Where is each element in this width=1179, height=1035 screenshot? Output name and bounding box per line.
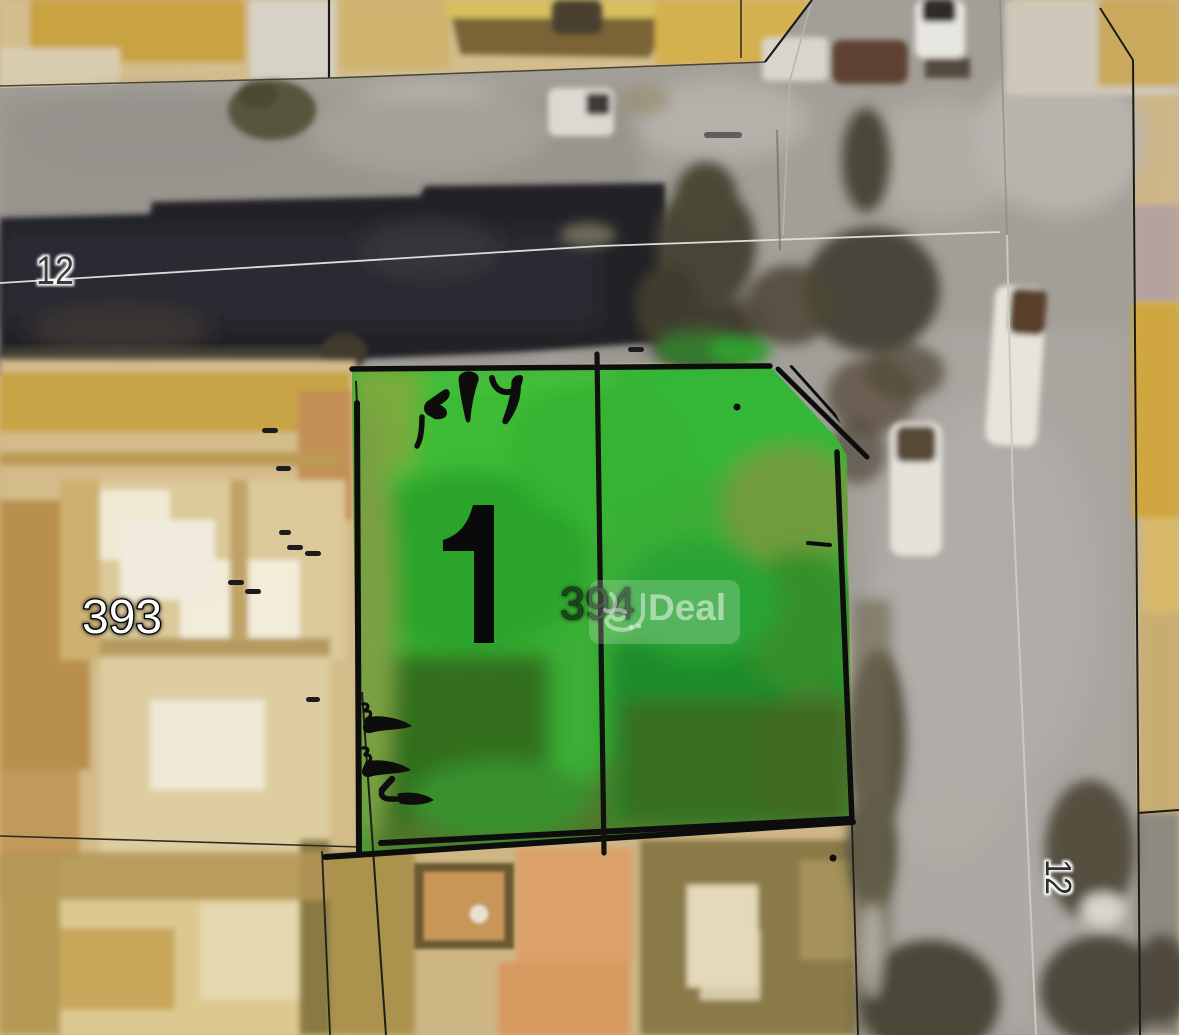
svg-text:12: 12 [36, 249, 74, 293]
svg-text:Deal: Deal [648, 587, 726, 628]
svg-text:12: 12 [1038, 859, 1079, 895]
svg-text:393: 393 [82, 591, 162, 644]
